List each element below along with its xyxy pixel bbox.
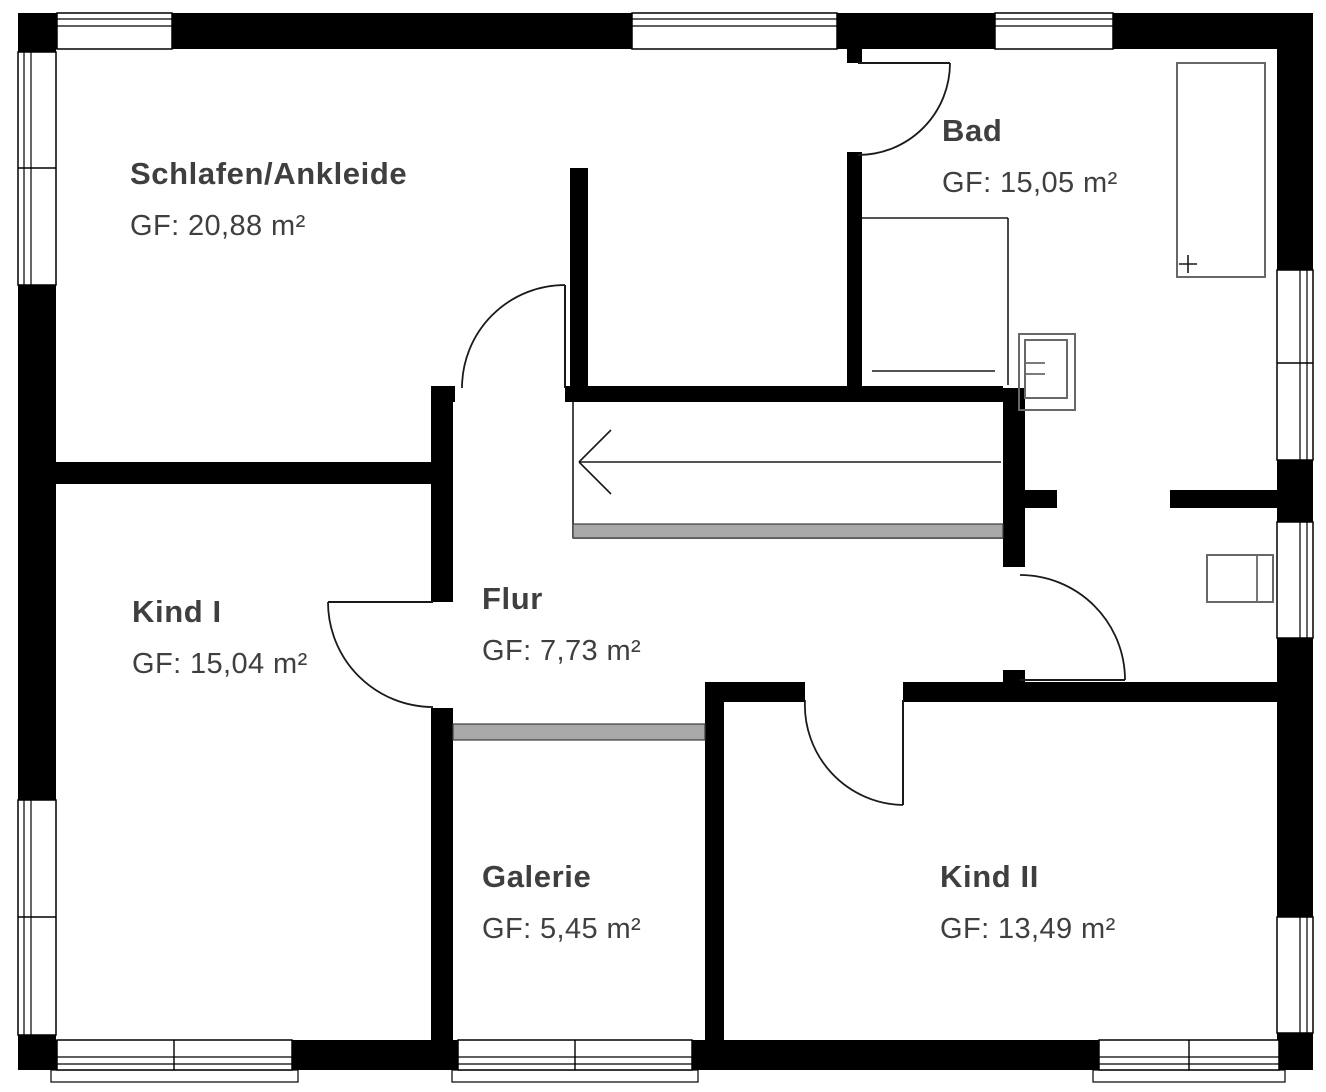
stair-edge-strip [573,524,1003,538]
window-sill [452,1070,698,1082]
room-area: GF: 15,04 m² [132,646,308,682]
wall [431,402,453,602]
room-area: GF: 15,05 m² [942,165,1118,201]
washbasin-inner [1025,340,1067,398]
door-swing-arc [328,602,433,707]
room-name: Bad [942,113,1118,149]
room-name: Schlafen/Ankleide [130,156,407,192]
wall [1025,490,1057,508]
wall [431,386,455,402]
room-label-flur: Flur GF: 7,73 m² [482,581,641,669]
room-name: Flur [482,581,641,617]
floor-plan: Schlafen/Ankleide GF: 20,88 m² Bad GF: 1… [0,0,1326,1092]
room-name: Kind II [940,859,1116,895]
room-area: GF: 5,45 m² [482,911,641,947]
door-swing-arc [462,285,565,388]
radiator [1207,555,1273,602]
window-sill [1093,1070,1285,1082]
wall [847,49,862,63]
room-area: GF: 13,49 m² [940,911,1116,947]
room-label-kind-2: Kind II GF: 13,49 m² [940,859,1116,947]
room-label-bad: Bad GF: 15,05 m² [942,113,1118,201]
gallery-railing [453,724,705,740]
room-label-schlafen-ankleide: Schlafen/Ankleide GF: 20,88 m² [130,156,407,244]
room-label-kind-1: Kind I GF: 15,04 m² [132,594,308,682]
room-area: GF: 20,88 m² [130,208,407,244]
wall [1003,388,1025,567]
room-label-galerie: Galerie GF: 5,45 m² [482,859,641,947]
wall [570,168,588,388]
wall [431,708,453,1040]
wall [903,682,1277,702]
door-swing-arc [858,63,950,155]
room-area: GF: 7,73 m² [482,633,641,669]
room-name: Galerie [482,859,641,895]
plan-line [579,430,611,462]
door-swing-arc [1020,575,1125,680]
plan-line [579,462,611,494]
wall [565,386,1003,402]
bathtub [1177,63,1265,277]
wall [1170,490,1277,508]
window-sill [51,1070,298,1082]
wall [847,152,862,388]
wall [705,682,724,1040]
room-name: Kind I [132,594,308,630]
wall [56,462,431,484]
door-swing-arc [805,700,903,805]
